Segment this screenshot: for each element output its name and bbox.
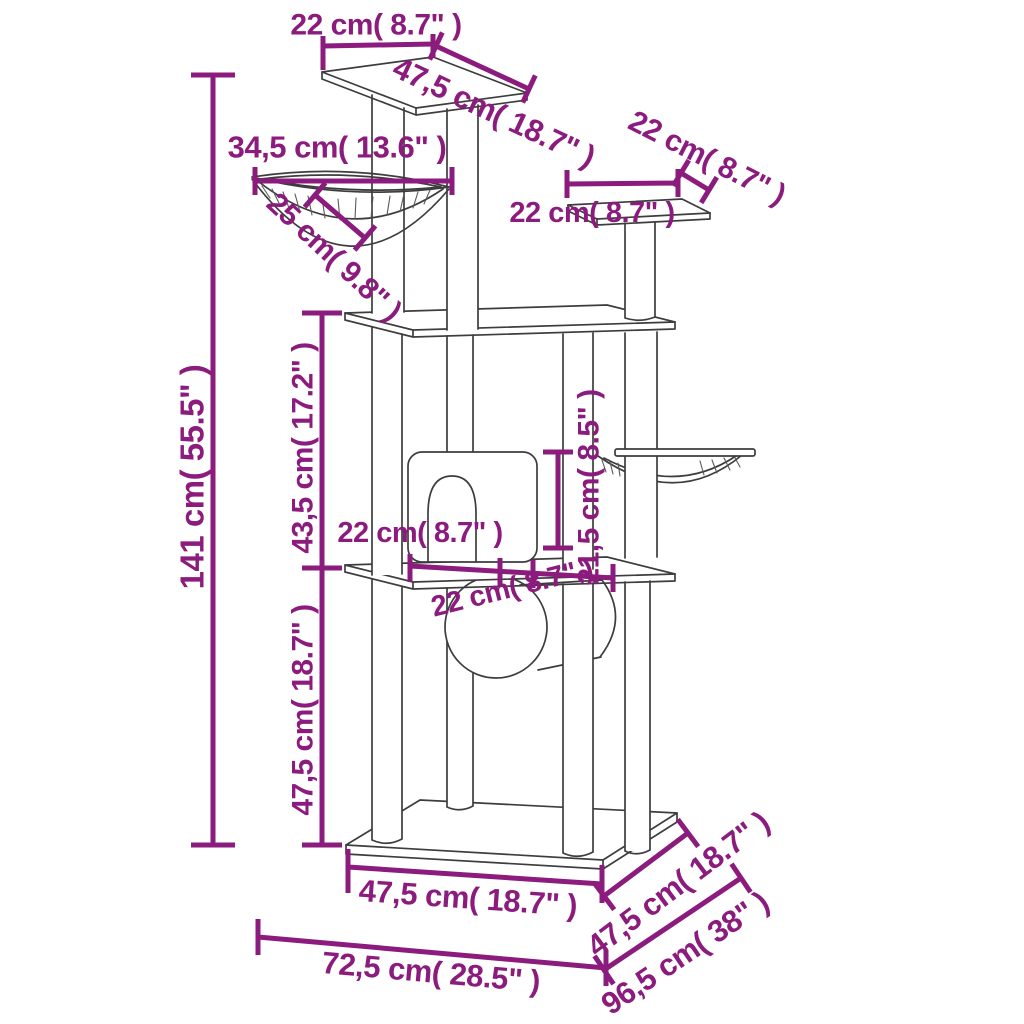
diagram-canvas: 22 cm( 8.7" ) 47,5 cm( 18.7" ) 22 cm( 8.… <box>0 0 1024 1024</box>
support-post <box>625 222 655 320</box>
dim-label-top-platform-width: 22 cm( 8.7" ) <box>290 9 461 42</box>
dim-line-right-platform-width <box>567 169 678 198</box>
dim-label-house-width: 22 cm( 8.7" ) <box>337 517 502 549</box>
support-post <box>563 583 593 856</box>
dim-label-right-platform-width: 22 cm( 8.7" ) <box>509 197 674 229</box>
cat-tree-dimension-diagram: 22 cm( 8.7" ) 47,5 cm( 18.7" ) 22 cm( 8.… <box>0 0 1024 1024</box>
lower-hammock <box>598 455 742 483</box>
lower-hammock-rim <box>615 449 755 456</box>
dim-label-middle-section-height: 43,5 cm( 17.2" ) <box>287 342 320 553</box>
dim-label-total-height: 141 cm( 55.5" ) <box>174 365 211 590</box>
dim-label-basket-width: 34,5 cm( 13.6" ) <box>228 130 447 165</box>
dim-label-lower-section-height: 47,5 cm( 18.7" ) <box>287 604 320 815</box>
